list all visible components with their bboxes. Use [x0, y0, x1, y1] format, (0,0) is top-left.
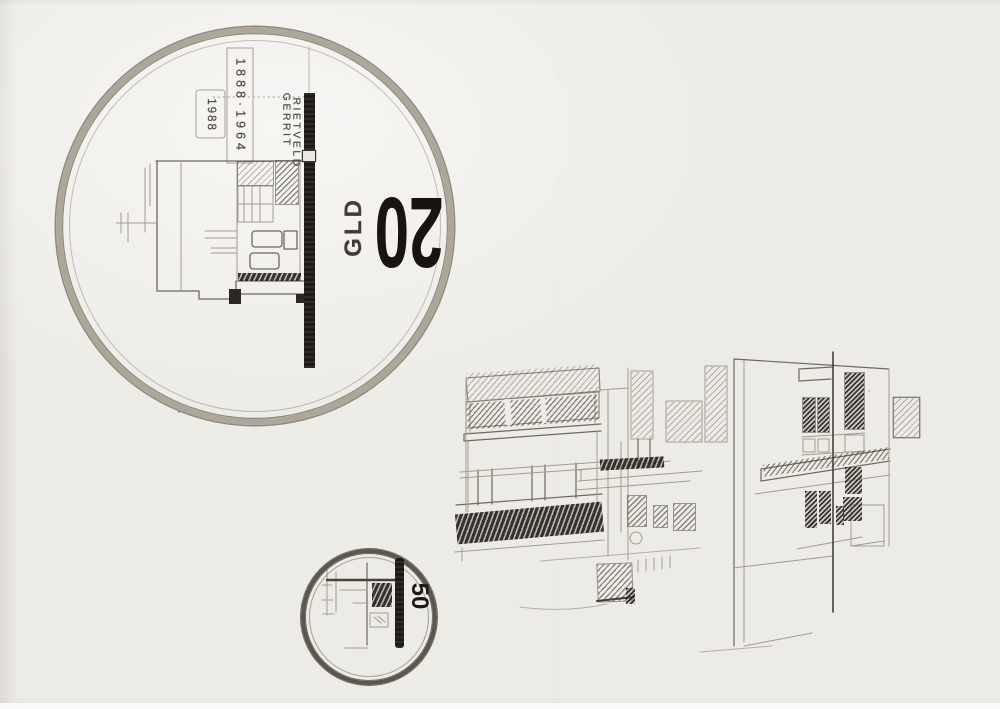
- elevation-shadow-strip: [238, 273, 301, 281]
- scan-edge-strip: [0, 703, 1000, 709]
- dark-window-hatch: [836, 506, 844, 525]
- large-coin-bar-joint: [303, 151, 315, 161]
- life-years-label: 1888·1964: [234, 58, 247, 154]
- lower-pane-hatch: [674, 504, 695, 530]
- paper-speck: [868, 390, 870, 392]
- issue-year-label: 1988: [204, 98, 216, 132]
- elevation-dark-nub: [296, 294, 304, 303]
- lower-pane-hatch: [654, 506, 667, 527]
- large-coin-bar-lower: [304, 162, 315, 368]
- sketch-paper: 1888·1964 1988 GERRIT RIETVELD GLD 20 50: [0, 0, 1000, 709]
- last-name-label: RIETVELD: [291, 97, 302, 168]
- ground-box-dark: [626, 588, 635, 604]
- window-hatch: [667, 402, 701, 441]
- elevation-dark-foot: [229, 289, 241, 304]
- elevation-roof-hatch: [238, 162, 273, 185]
- lower-pane-hatch: [628, 496, 646, 526]
- small-coin-circle: [301, 549, 437, 685]
- dark-window-hatch: [803, 398, 815, 432]
- small-coin-bar: [395, 558, 404, 648]
- window-hatch: [632, 372, 652, 438]
- dark-window-hatch: [843, 497, 862, 521]
- denomination-20-label: 20: [375, 182, 444, 282]
- window-hatch: [894, 398, 919, 437]
- dark-window-hatch: [805, 491, 817, 528]
- small-coin-window-scribble: [372, 583, 392, 607]
- paper-speck: [178, 411, 180, 413]
- dark-window-hatch: [845, 467, 862, 494]
- currency-label: GLD: [342, 197, 366, 257]
- dark-window-hatch: [845, 373, 864, 429]
- paper-speck: [243, 147, 245, 149]
- window-hatch: [706, 367, 726, 441]
- dark-window-hatch: [818, 398, 829, 432]
- dark-window-hatch: [819, 491, 831, 524]
- large-coin-bar-upper: [304, 93, 315, 150]
- denomination-50-label: 50: [407, 583, 431, 610]
- paper-crease: [557, 0, 559, 709]
